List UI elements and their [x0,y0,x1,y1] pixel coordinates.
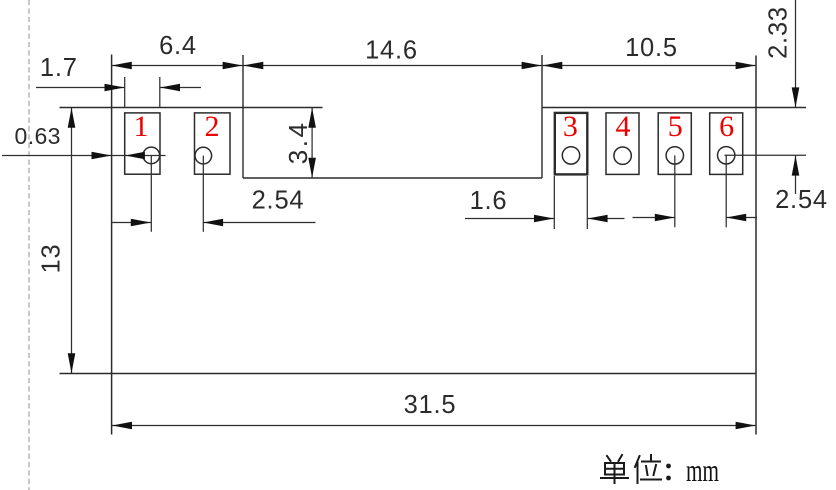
svg-text:3.4: 3.4 [283,121,313,165]
svg-text:13: 13 [38,244,66,274]
svg-text:4: 4 [616,110,631,143]
svg-text:31.5: 31.5 [404,391,457,419]
svg-text:2.33: 2.33 [765,6,793,59]
svg-text:1.7: 1.7 [40,54,78,82]
svg-text:6.4: 6.4 [159,32,197,60]
svg-text:1: 1 [134,110,149,143]
svg-text:3: 3 [563,110,578,143]
svg-text:5: 5 [668,110,683,143]
svg-text:2.54: 2.54 [775,186,828,214]
svg-text:6: 6 [719,110,734,143]
svg-text:10.5: 10.5 [625,34,678,62]
svg-text:2.54: 2.54 [252,187,305,215]
svg-text:0.63: 0.63 [15,123,61,149]
svg-text:mm: mm [686,453,719,488]
svg-text:1.6: 1.6 [470,187,508,215]
svg-text:14.6: 14.6 [365,37,418,65]
svg-text:2: 2 [205,110,220,143]
